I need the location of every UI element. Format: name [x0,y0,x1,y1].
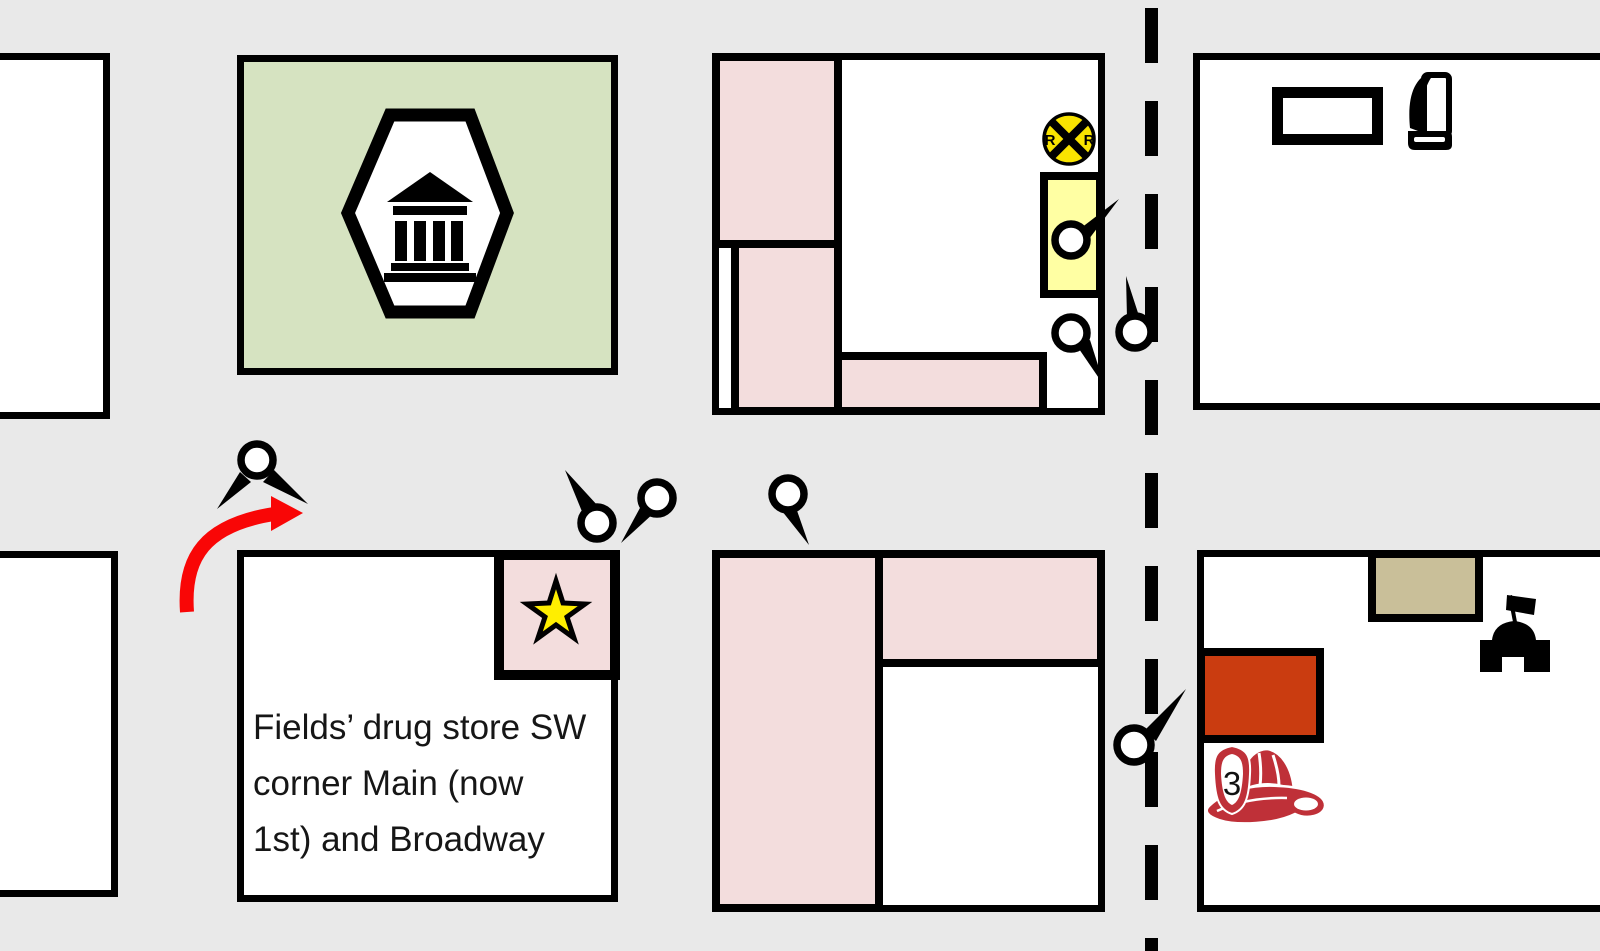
map-canvas: 3 Fields’ drug store SW corner Main (now… [0,0,1600,951]
map-overlay: R R [0,0,1600,951]
map-pin-icon [772,478,809,545]
curved-arrow-icon [187,496,303,612]
map-pin-icon [1055,199,1119,256]
map-pin-icon [1055,317,1105,387]
map-pin-icon [565,470,613,539]
rr-right-letter: R [1084,132,1095,149]
railroad-crossing-icon: R R [1044,114,1095,164]
map-pin-icon [217,444,308,509]
rr-left-letter: R [1045,132,1056,149]
map-pin-icon [621,482,673,543]
